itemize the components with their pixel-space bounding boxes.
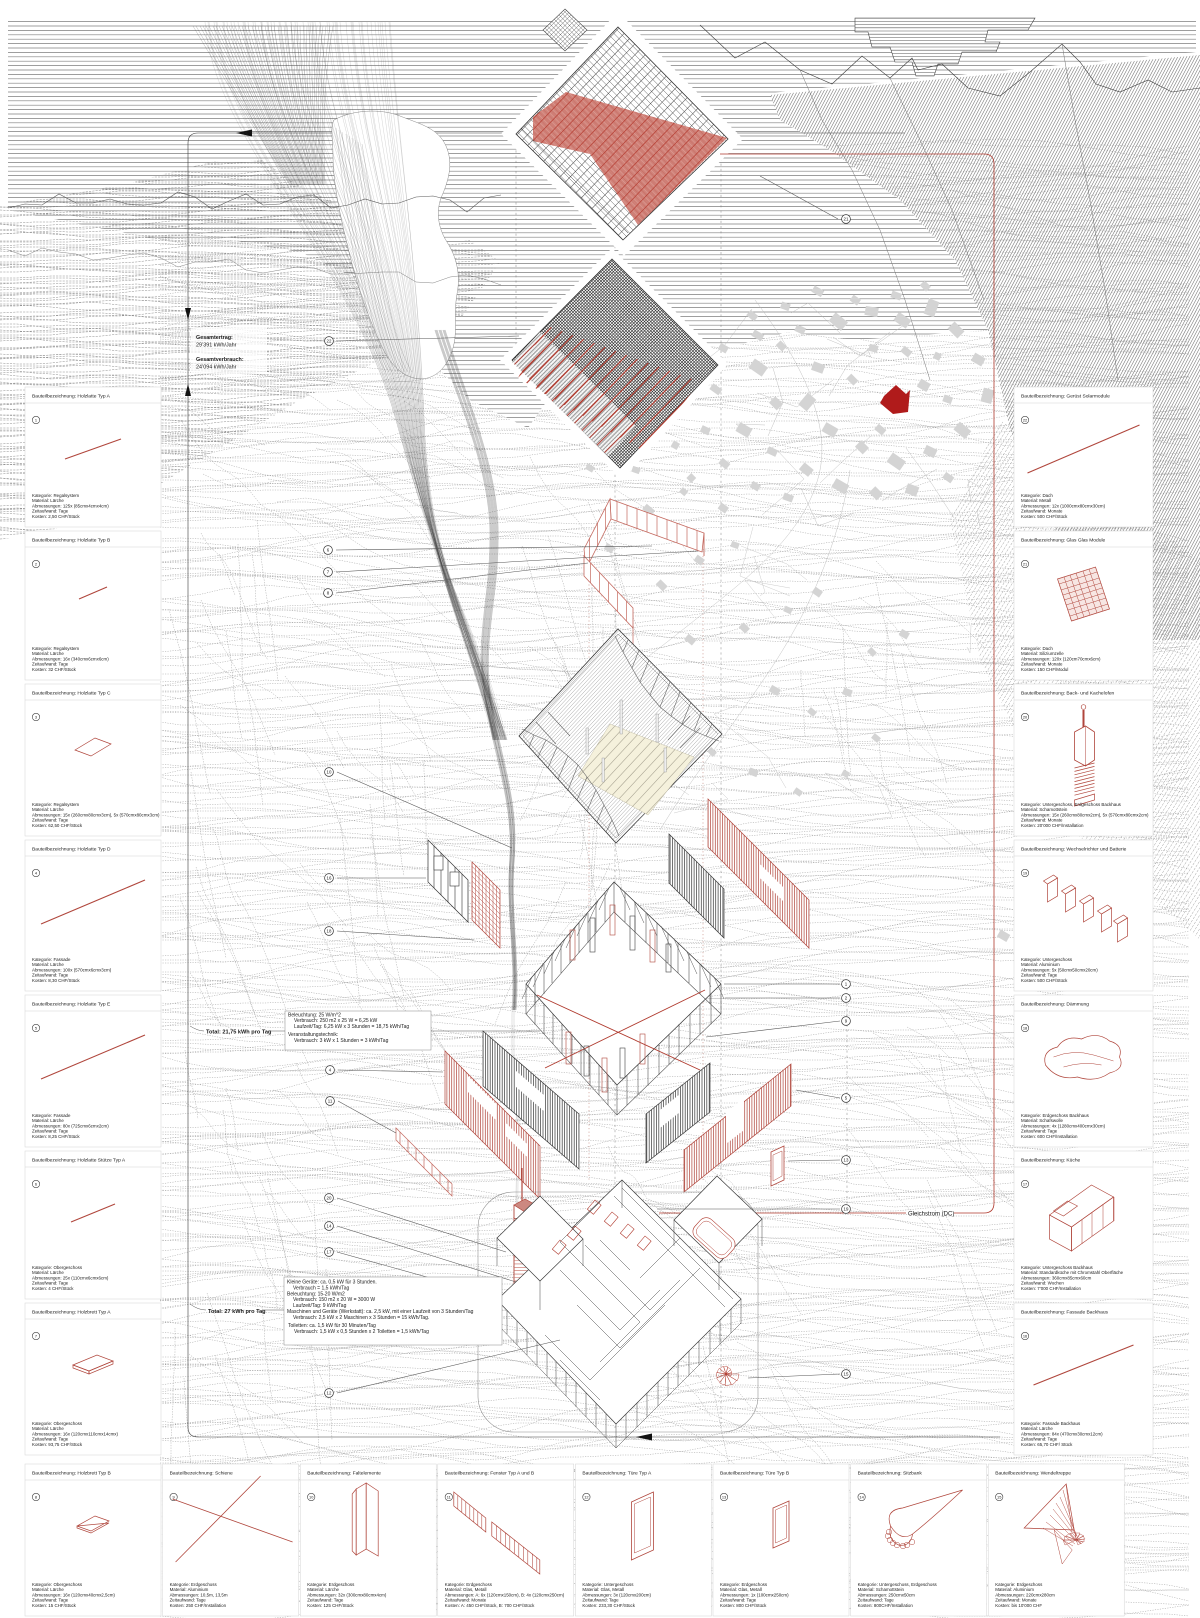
svg-text:2: 2: [35, 562, 37, 567]
svg-text:Kosten: 233,30 CHF/Stück: Kosten: 233,30 CHF/Stück: [582, 1603, 635, 1608]
svg-text:Kosten: 65,70 CHF/ Stück: Kosten: 65,70 CHF/ Stück: [1021, 1442, 1073, 1447]
svg-text:16: 16: [327, 876, 332, 881]
svg-text:Bauteilbezeichnung: Holzlatte: Bauteilbezeichnung: Holzlatte Typ E: [32, 1002, 111, 1008]
svg-text:Kosten: 8,25 CHF/Stück: Kosten: 8,25 CHF/Stück: [32, 1134, 80, 1139]
svg-text:20: 20: [327, 1196, 332, 1201]
svg-text:Kosten: 15 CHF/Stück: Kosten: 15 CHF/Stück: [32, 1603, 77, 1608]
svg-text:17: 17: [1023, 1182, 1027, 1187]
svg-text:Kosten: bis 10’000 CHF: Kosten: bis 10’000 CHF: [995, 1603, 1042, 1608]
svg-text:Kosten: A: 450 CHF/Stück, B: 7: Kosten: A: 450 CHF/Stück, B: 700 CHF/Stü…: [445, 1603, 535, 1608]
svg-text:Bauteilbezeichnung: Glas Glas: Bauteilbezeichnung: Glas Glas Module: [1021, 538, 1106, 544]
svg-text:3: 3: [35, 715, 37, 720]
svg-text:24’094 kWh/Jahr: 24’094 kWh/Jahr: [196, 365, 237, 371]
svg-text:15: 15: [997, 1495, 1001, 1500]
svg-text:22: 22: [1023, 418, 1027, 423]
svg-text:1: 1: [35, 418, 37, 423]
svg-text:Bauteilbezeichnung: Türe Typ B: Bauteilbezeichnung: Türe Typ B: [720, 1471, 789, 1477]
svg-text:Gleichstrom (DC): Gleichstrom (DC): [908, 1212, 954, 1218]
svg-text:Bauteilbezeichnung: Schiene: Bauteilbezeichnung: Schiene: [170, 1471, 233, 1477]
svg-text:Bauteilbezeichnung: Holzbrett: Bauteilbezeichnung: Holzbrett Typ B: [32, 1471, 111, 1477]
svg-text:16: 16: [1023, 1334, 1027, 1339]
svg-text:8: 8: [35, 1495, 37, 1500]
svg-text:Bauteilbezeichnung: Fassade Ba: Bauteilbezeichnung: Fassade Backhaus: [1021, 1310, 1109, 1316]
svg-text:19: 19: [844, 1207, 849, 1212]
svg-text:Bauteilbezeichnung: Fenster Ty: Bauteilbezeichnung: Fenster Typ A und B: [445, 1471, 534, 1477]
svg-text:Laufzeit/Tag: 6,25 kW x 3 Stun: Laufzeit/Tag: 6,25 kW x 3 Stunden = 18,7…: [294, 1024, 409, 1030]
svg-text:Verbrauch: 3 kW x 1 Stunden =: Verbrauch: 3 kW x 1 Stunden = 3 kWh/Tag: [294, 1038, 389, 1044]
svg-text:Kosten: 7’000 CHF/Installation: Kosten: 7’000 CHF/Installation: [1021, 1286, 1081, 1291]
svg-text:Kosten: 20’000 CHF/Installatio: Kosten: 20’000 CHF/Installation: [1021, 823, 1084, 828]
svg-text:14: 14: [327, 1224, 332, 1229]
svg-text:Bauteilbezeichnung: Wendeltrep: Bauteilbezeichnung: Wendeltreppe: [995, 1471, 1071, 1477]
svg-text:Kosten: 93,75 CHF/Stück: Kosten: 93,75 CHF/Stück: [32, 1442, 83, 1447]
svg-text:5: 5: [35, 1026, 37, 1031]
svg-text:29’391 kWh/Jahr: 29’391 kWh/Jahr: [196, 343, 237, 349]
svg-text:Bauteilbezeichnung: Holzlatte: Bauteilbezeichnung: Holzlatte Stütze Typ…: [32, 1158, 126, 1164]
svg-text:15: 15: [844, 1372, 849, 1377]
svg-text:13: 13: [722, 1495, 726, 1500]
svg-text:Kosten: 600 CHF/Installation: Kosten: 600 CHF/Installation: [1021, 1134, 1078, 1139]
svg-text:21: 21: [844, 217, 849, 222]
svg-text:Bauteilbezeichnung: Dämmung: Bauteilbezeichnung: Dämmung: [1021, 1002, 1089, 1008]
svg-text:22: 22: [327, 339, 332, 344]
svg-text:Bauteilbezeichnung: Sitzbank: Bauteilbezeichnung: Sitzbank: [858, 1471, 923, 1477]
svg-text:Bauteilbezeichnung: Faltelemen: Bauteilbezeichnung: Faltelemente: [307, 1471, 381, 1477]
svg-text:Kosten: 150 CHF/Modul: Kosten: 150 CHF/Modul: [1021, 667, 1068, 672]
svg-text:18: 18: [327, 929, 332, 934]
svg-text:Bauteilbezeichnung: Holzlatte: Bauteilbezeichnung: Holzlatte Typ B: [32, 538, 110, 544]
svg-text:Bauteilbezeichnung: Holzbrett: Bauteilbezeichnung: Holzbrett Typ A: [32, 1310, 111, 1316]
svg-text:17: 17: [327, 1250, 332, 1255]
svg-text:Kosten: 500 CHF/Stück: Kosten: 500 CHF/Stück: [1021, 514, 1068, 519]
svg-text:Kosten: 4 CHF/Stück: Kosten: 4 CHF/Stück: [32, 1286, 74, 1291]
svg-text:Kosten: 8,30 CHF/Stück: Kosten: 8,30 CHF/Stück: [32, 978, 80, 983]
svg-text:7: 7: [35, 1334, 37, 1339]
svg-text:Bauteilbezeichnung: Türe Typ A: Bauteilbezeichnung: Türe Typ A: [582, 1471, 652, 1477]
svg-text:11: 11: [328, 1099, 333, 1104]
svg-text:18: 18: [1023, 1026, 1027, 1031]
svg-text:Kosten: 800 CHF/Stück: Kosten: 800 CHF/Stück: [720, 1603, 767, 1608]
svg-text:Kosten: 2,50 CHF/Stück: Kosten: 2,50 CHF/Stück: [32, 514, 80, 519]
svg-text:Total: 27 kWh pro Tag: Total: 27 kWh pro Tag: [208, 1309, 266, 1315]
svg-text:Kosten: 800CHF/Installation: Kosten: 800CHF/Installation: [858, 1603, 914, 1608]
svg-text:6: 6: [35, 1182, 37, 1187]
svg-text:10: 10: [327, 770, 332, 775]
svg-text:Total: 21,75 kWh pro Tag: Total: 21,75 kWh pro Tag: [206, 1030, 272, 1036]
svg-text:Bauteilbezeichnung: Holzlatte: Bauteilbezeichnung: Holzlatte Typ C: [32, 691, 111, 697]
svg-text:Bauteilbezeichnung: Küche: Bauteilbezeichnung: Küche: [1021, 1158, 1081, 1164]
svg-text:21: 21: [1023, 562, 1027, 567]
svg-text:Kosten: 32 CHF/Stück: Kosten: 32 CHF/Stück: [32, 667, 77, 672]
svg-text:Kosten: 500 CHF/Stück: Kosten: 500 CHF/Stück: [1021, 978, 1068, 983]
svg-text:Kosten: 62,50 CHF/Stück: Kosten: 62,50 CHF/Stück: [32, 823, 83, 828]
svg-text:Bauteilbezeichnung: Gerüst Sol: Bauteilbezeichnung: Gerüst Solarmodule: [1021, 394, 1110, 400]
svg-text:Gesamtertrag:: Gesamtertrag:: [196, 335, 233, 341]
svg-text:Bauteilbezeichnung: Wechselric: Bauteilbezeichnung: Wechselrichter und B…: [1021, 847, 1127, 853]
svg-text:12: 12: [327, 1391, 332, 1396]
svg-text:Verbrauch: 2,5 kW x 2 Maschine: Verbrauch: 2,5 kW x 2 Maschinen x 3 Stun…: [293, 1315, 429, 1321]
svg-text:Bauteilbezeichnung: Back- und: Bauteilbezeichnung: Back- und Kachelofen: [1021, 691, 1115, 697]
svg-text:Gesamtverbrauch:: Gesamtverbrauch:: [196, 357, 244, 363]
svg-text:Verbrauch: 1,5 kW x 0,5 Stunde: Verbrauch: 1,5 kW x 0,5 Stunden x 2 Toil…: [294, 1329, 429, 1335]
svg-text:Bauteilbezeichnung: Holzlatte: Bauteilbezeichnung: Holzlatte Typ A: [32, 394, 111, 400]
svg-text:11: 11: [447, 1495, 451, 1500]
svg-text:12: 12: [584, 1495, 588, 1500]
svg-text:Kosten: 250 CHF/Installation: Kosten: 250 CHF/Installation: [170, 1603, 227, 1608]
svg-text:19: 19: [1023, 871, 1027, 876]
svg-text:Kosten: 125 CHF/Stück: Kosten: 125 CHF/Stück: [307, 1603, 354, 1608]
svg-text:13: 13: [844, 1158, 849, 1163]
svg-text:Bauteilbezeichnung: Holzlatte: Bauteilbezeichnung: Holzlatte Typ D: [32, 847, 111, 853]
